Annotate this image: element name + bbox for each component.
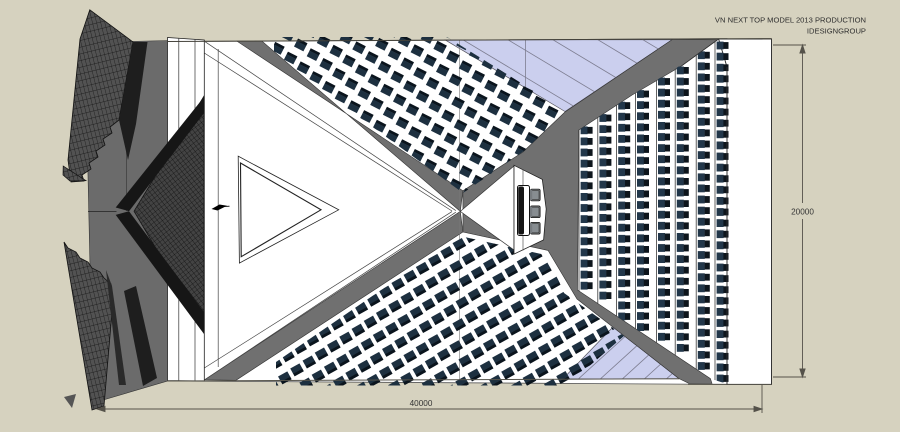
- svg-text:20000: 20000: [791, 208, 814, 217]
- svg-text:VN NEXT TOP MODEL 2013 PRODUCT: VN NEXT TOP MODEL 2013 PRODUCTION: [715, 16, 866, 25]
- svg-text:40000: 40000: [410, 399, 433, 408]
- svg-text:IDESIGNGROUP: IDESIGNGROUP: [807, 27, 866, 36]
